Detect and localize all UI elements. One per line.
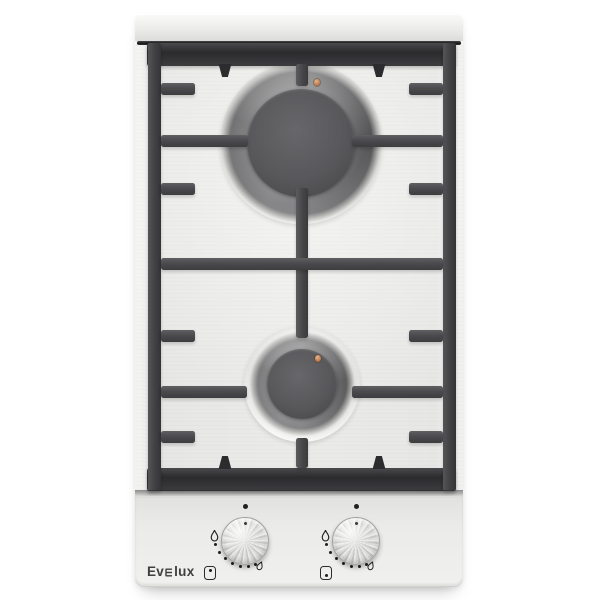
- position-pip: [325, 574, 328, 577]
- grate-top-rail: [147, 43, 456, 66]
- front-burner-cap: [267, 349, 337, 419]
- burner-position-front-icon: [320, 566, 332, 580]
- front-ignition-electrode: [315, 355, 321, 362]
- dial-level-dot: [239, 565, 242, 568]
- knob-indicator-dot: [355, 522, 358, 525]
- grate-bottom-rail: [147, 468, 456, 491]
- grate-stub: [161, 431, 195, 443]
- grate-stub: [409, 330, 443, 342]
- burner-position-rear-icon: [204, 566, 216, 580]
- grate-center-rail: [296, 64, 308, 86]
- gas-hob: Ev lux: [135, 14, 463, 586]
- dial-level-dot: [335, 557, 338, 560]
- rear-burner-cap: [247, 89, 355, 197]
- dial-level-dot: [329, 551, 332, 554]
- rear-burner-control: [209, 502, 281, 574]
- dial-off-dot: [354, 504, 359, 509]
- grate-stub: [409, 83, 443, 95]
- panel-seam: [135, 490, 463, 498]
- knob-indicator-dot: [244, 522, 247, 525]
- rear-ignition-electrode: [314, 79, 320, 86]
- grate-stub: [409, 183, 443, 195]
- grate-crossbar: [161, 135, 248, 147]
- dial-level-dot: [218, 551, 221, 554]
- grate-stub: [161, 183, 195, 195]
- grate-center-rail: [296, 438, 308, 468]
- brand-stylized-e: [165, 568, 173, 577]
- brand-text-suffix: lux: [174, 564, 194, 579]
- grate-left-rail: [148, 43, 161, 491]
- brand-logo: Ev lux: [147, 564, 195, 579]
- grate-crossbar: [352, 135, 443, 147]
- dial-level-dot: [214, 543, 217, 546]
- grate-crossbar: [161, 258, 443, 270]
- product-photo: Ev lux: [0, 0, 600, 600]
- brand-text-prefix: Ev: [147, 564, 164, 579]
- grate-crossbar: [161, 386, 247, 398]
- grate-crossbar: [352, 386, 443, 398]
- dial-level-dot: [325, 543, 328, 546]
- dial-level-dot: [358, 565, 361, 568]
- grate-stub: [161, 83, 195, 95]
- hob-top-edge: [135, 14, 463, 41]
- grate-right-rail: [443, 43, 456, 491]
- grate-stub: [161, 330, 195, 342]
- dial-level-dot: [247, 565, 250, 568]
- dial-level-dot: [224, 557, 227, 560]
- front-burner-control: [320, 502, 392, 574]
- grate-stub: [409, 431, 443, 443]
- dial-level-dot: [350, 565, 353, 568]
- position-pip: [209, 569, 212, 572]
- dial-off-dot: [243, 504, 248, 509]
